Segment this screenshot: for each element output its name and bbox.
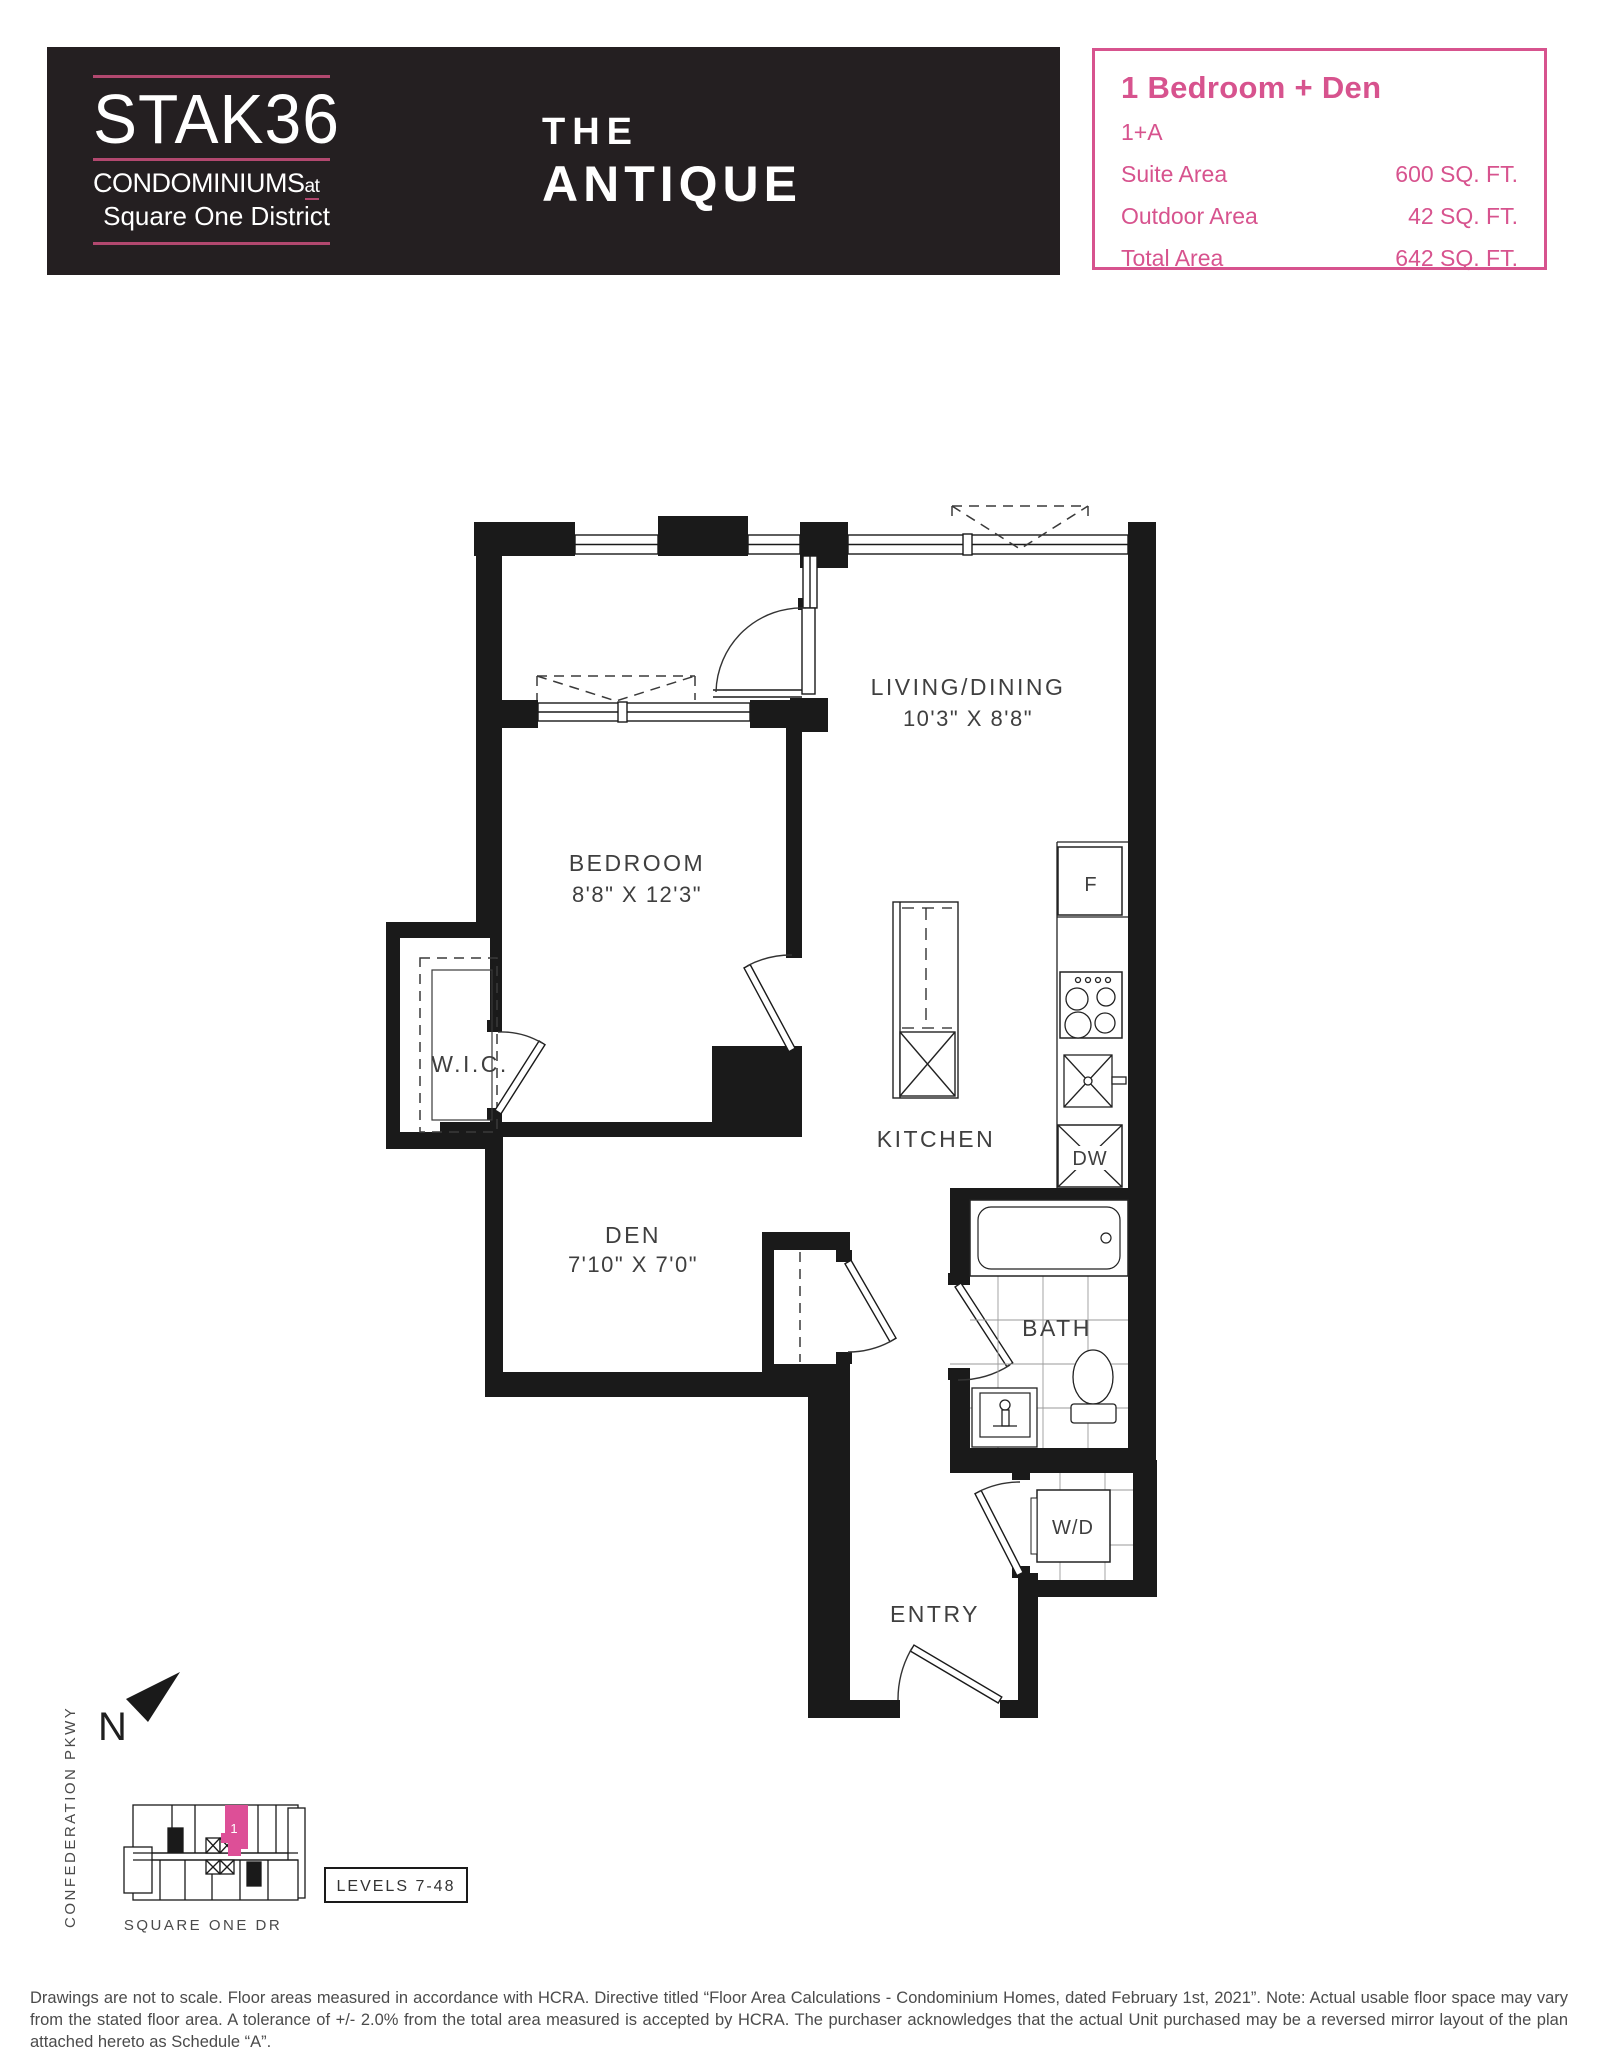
key-plan: 1 (124, 1805, 305, 1900)
fridge-label: F (1084, 874, 1097, 896)
den-label: DEN (605, 1222, 661, 1248)
street-bottom-label: SQUARE ONE DR (124, 1917, 282, 1934)
entry-label: ENTRY (890, 1601, 980, 1627)
bathtub (970, 1200, 1128, 1276)
den-dims: 7'10" X 7'0" (568, 1252, 698, 1277)
bath-label: BATH (1022, 1315, 1092, 1341)
floor-plan-drawing: LIVING/DINING 10'3" X 8'8" BEDROOM 8'8" … (0, 0, 1600, 2071)
kitchen-label: KITCHEN (877, 1126, 995, 1152)
levels-label: LEVELS 7-48 (337, 1878, 456, 1895)
kitchen-sink (1064, 1055, 1126, 1107)
door-arcs (498, 608, 1020, 1700)
toilet (1071, 1350, 1116, 1423)
vanity-sink (972, 1388, 1037, 1447)
key-plan-unit-number: 1 (230, 1821, 237, 1836)
north-label: N (98, 1705, 127, 1749)
bedroom-dims: 8'8" X 12'3" (572, 882, 702, 907)
living-dining-dims: 10'3" X 8'8" (903, 706, 1033, 731)
washer-dryer-label: W/D (1052, 1517, 1094, 1539)
north-arrow: N (98, 1672, 180, 1749)
wic-label: W.I.C. (431, 1051, 509, 1077)
wic-shelf (432, 970, 492, 1120)
disclaimer-text: Drawings are not to scale. Floor areas m… (30, 1987, 1568, 2053)
bedroom-label: BEDROOM (569, 850, 705, 876)
dishwasher-label: DW (1072, 1148, 1107, 1170)
washer-dryer-door (1031, 1498, 1037, 1554)
street-left-label: CONFEDERATION PKWY (62, 1706, 79, 1928)
living-dining-label: LIVING/DINING (871, 674, 1066, 700)
